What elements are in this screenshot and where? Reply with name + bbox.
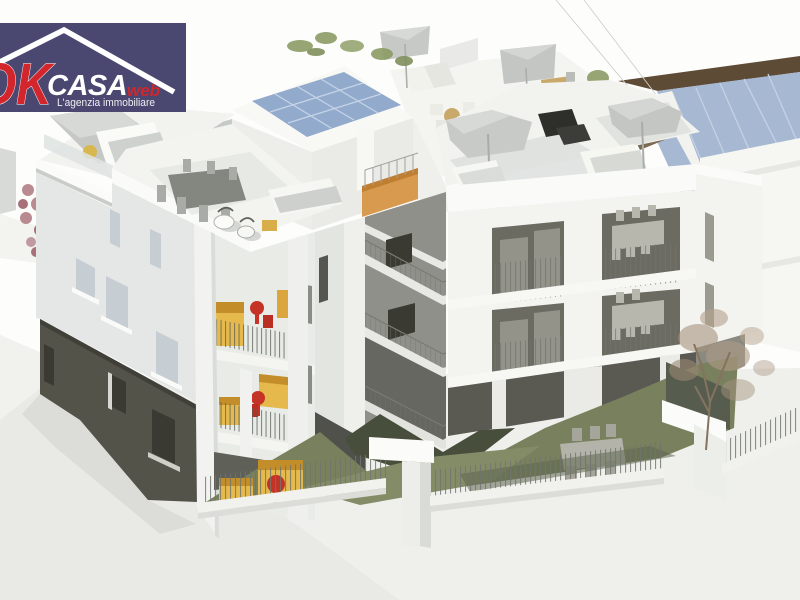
svg-text:L'agenzia immobiliare: L'agenzia immobiliare [57, 97, 155, 109]
